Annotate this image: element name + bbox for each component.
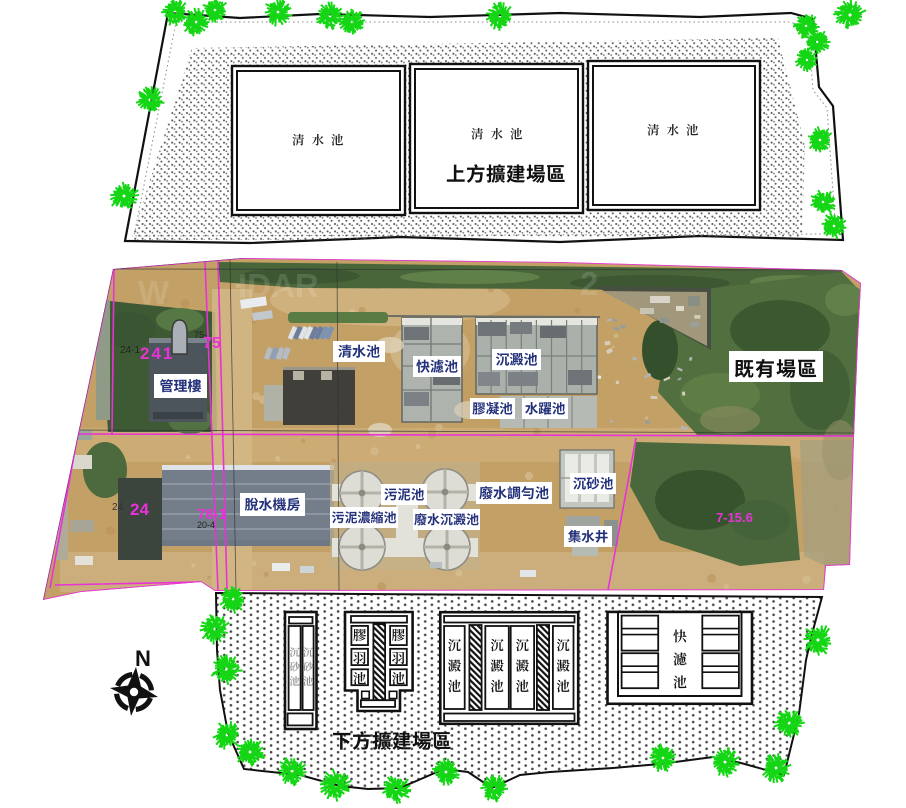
svg-text:W: W (138, 274, 170, 311)
svg-text:75: 75 (203, 335, 221, 352)
svg-text:N: N (135, 646, 151, 671)
svg-text:2: 2 (580, 265, 598, 302)
svg-text:24-1: 24-1 (120, 345, 140, 356)
svg-text:24: 24 (130, 500, 149, 519)
svg-text:IDAR: IDAR (238, 267, 319, 304)
svg-text:24: 24 (112, 502, 124, 513)
svg-text:7-15.6: 7-15.6 (716, 510, 753, 525)
svg-text:20-4: 20-4 (197, 520, 215, 530)
svg-text:241: 241 (140, 344, 174, 363)
